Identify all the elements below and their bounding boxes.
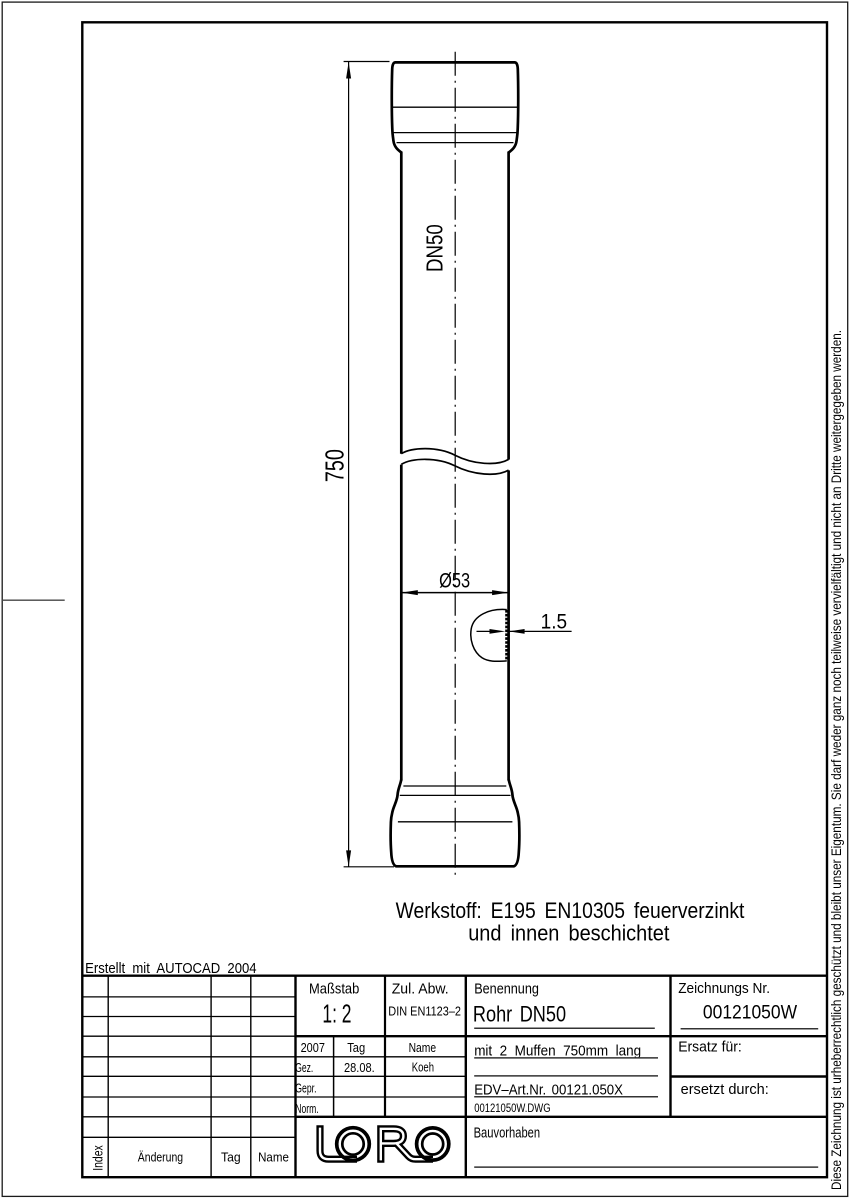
svg-text:ersetzt durch:: ersetzt durch: [681, 1082, 769, 1098]
svg-text:Index: Index [90, 1145, 106, 1171]
svg-text:und innen beschichtet: und innen beschichtet [468, 920, 670, 945]
svg-text:mit 2 Muffen 750mm lang: mit 2 Muffen 750mm lang [474, 1043, 641, 1059]
svg-text:Gez.: Gez. [295, 1061, 313, 1075]
svg-text:Ø53: Ø53 [439, 569, 470, 593]
svg-text:Tag: Tag [221, 1149, 241, 1164]
svg-text:1.5: 1.5 [541, 610, 568, 634]
svg-text:Norm.: Norm. [295, 1102, 318, 1116]
svg-text:DIN EN1123–2: DIN EN1123–2 [388, 1004, 461, 1019]
svg-text:1: 2: 1: 2 [322, 1000, 351, 1028]
svg-text:Diese Zeichnung ist urheberrec: Diese Zeichnung ist urheberrechtlich ges… [828, 330, 844, 1190]
svg-text:Maßstab: Maßstab [309, 981, 359, 997]
svg-text:Name: Name [258, 1149, 289, 1164]
svg-text:Gepr.: Gepr. [295, 1082, 316, 1096]
svg-text:EDV–Art.Nr. 00121.050X: EDV–Art.Nr. 00121.050X [474, 1082, 623, 1098]
svg-text:750: 750 [322, 449, 350, 482]
svg-text:00121050W.DWG: 00121050W.DWG [474, 1101, 550, 1115]
svg-text:Tag: Tag [347, 1041, 365, 1055]
svg-text:Benennung: Benennung [474, 981, 539, 997]
svg-text:Zeichnungs Nr.: Zeichnungs Nr. [678, 981, 770, 997]
svg-text:Zul. Abw.: Zul. Abw. [392, 981, 449, 997]
svg-text:00121050W: 00121050W [703, 1002, 798, 1024]
svg-text:28.08.: 28.08. [344, 1061, 375, 1075]
svg-text:Ersatz für:: Ersatz für: [678, 1040, 742, 1056]
svg-text:2007: 2007 [301, 1041, 325, 1055]
svg-text:Werkstoff: E195 EN10305 feuer: Werkstoff: E195 EN10305 feuerverzinkt [396, 898, 745, 923]
svg-text:Rohr DN50: Rohr DN50 [473, 1002, 566, 1027]
svg-text:Name: Name [409, 1041, 437, 1055]
svg-text:DN50: DN50 [422, 224, 448, 272]
svg-text:Änderung: Änderung [138, 1149, 183, 1164]
svg-text:Koeh: Koeh [412, 1061, 434, 1075]
svg-text:Bauvorhaben: Bauvorhaben [474, 1125, 540, 1141]
